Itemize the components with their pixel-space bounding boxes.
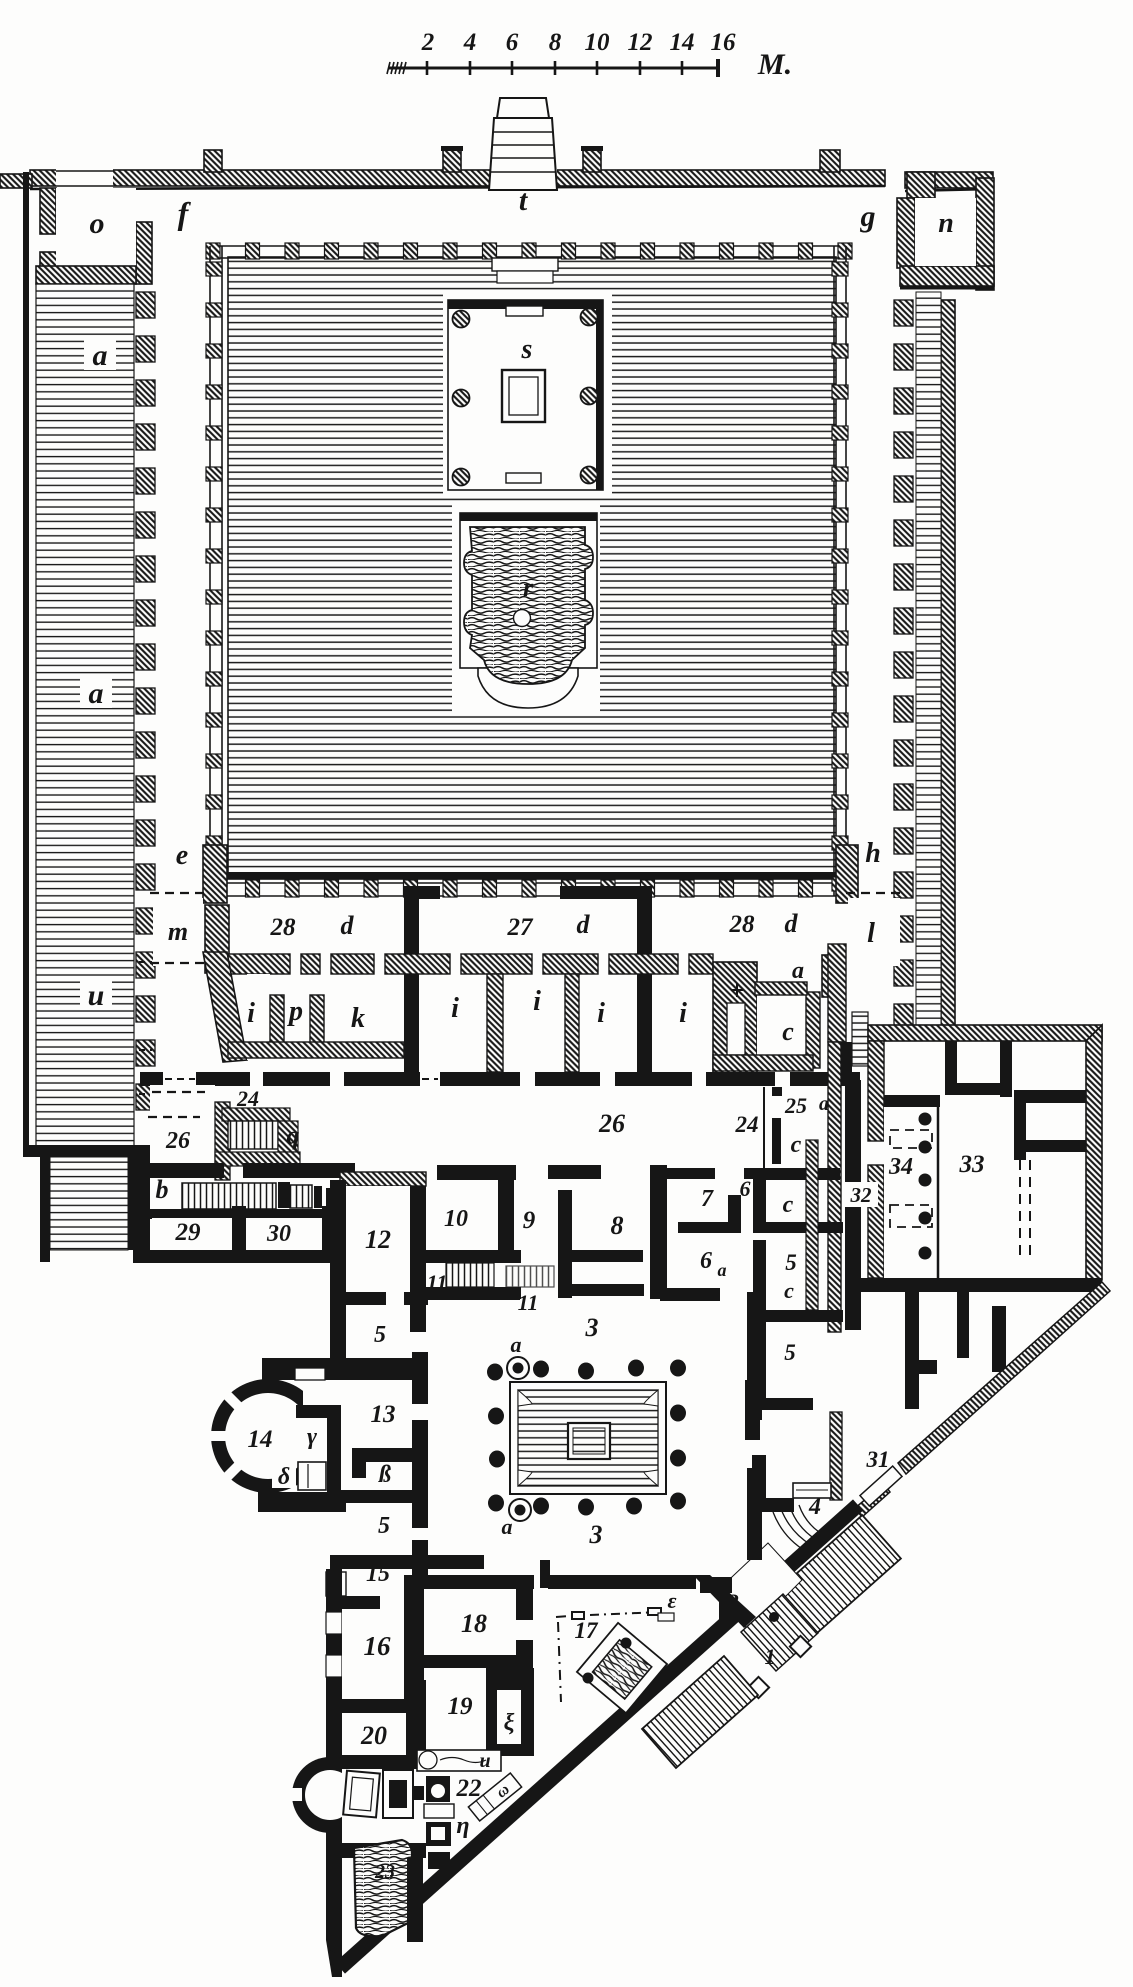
svg-text:u: u bbox=[479, 1750, 490, 1772]
svg-text:k: k bbox=[351, 1003, 365, 1034]
svg-text:a: a bbox=[792, 958, 804, 984]
svg-text:c: c bbox=[791, 1132, 802, 1158]
svg-text:24: 24 bbox=[236, 1086, 259, 1111]
svg-text:o: o bbox=[90, 207, 105, 240]
svg-text:c: c bbox=[784, 1278, 794, 1303]
svg-text:f: f bbox=[178, 195, 192, 231]
svg-text:n: n bbox=[938, 208, 954, 239]
svg-text:33: 33 bbox=[959, 1151, 985, 1178]
svg-text:h: h bbox=[865, 838, 881, 869]
svg-text:δ: δ bbox=[278, 1464, 290, 1490]
svg-text:10: 10 bbox=[585, 29, 611, 56]
svg-text:d: d bbox=[785, 909, 799, 938]
svg-text:g: g bbox=[860, 200, 876, 233]
svg-text:a: a bbox=[718, 1260, 727, 1280]
svg-text:s: s bbox=[521, 334, 533, 365]
svg-text:3: 3 bbox=[589, 1520, 603, 1549]
svg-text:19: 19 bbox=[448, 1693, 474, 1720]
svg-text:q: q bbox=[287, 1121, 300, 1150]
svg-text:22: 22 bbox=[456, 1775, 482, 1802]
svg-text:4: 4 bbox=[463, 29, 477, 56]
svg-text:6: 6 bbox=[740, 1176, 751, 1201]
svg-text:28: 28 bbox=[270, 914, 297, 941]
svg-text:34: 34 bbox=[888, 1154, 913, 1180]
svg-text:10: 10 bbox=[444, 1206, 468, 1232]
svg-text:16: 16 bbox=[711, 29, 737, 56]
svg-text:16: 16 bbox=[364, 1631, 392, 1661]
svg-text:a: a bbox=[93, 339, 108, 372]
svg-text:31: 31 bbox=[866, 1447, 890, 1472]
svg-text:5: 5 bbox=[374, 1322, 386, 1348]
svg-text:ß: ß bbox=[378, 1462, 391, 1488]
svg-text:6: 6 bbox=[700, 1248, 712, 1274]
svg-text:25: 25 bbox=[784, 1093, 807, 1118]
svg-text:6: 6 bbox=[506, 29, 519, 56]
svg-text:c: c bbox=[783, 1192, 794, 1218]
svg-text:ε: ε bbox=[667, 1588, 676, 1613]
svg-text:5: 5 bbox=[378, 1513, 390, 1539]
svg-text:27: 27 bbox=[507, 914, 535, 941]
svg-text:9: 9 bbox=[523, 1207, 536, 1234]
svg-text:5: 5 bbox=[785, 1250, 797, 1275]
svg-text:a: a bbox=[819, 1093, 829, 1115]
svg-text:e: e bbox=[176, 840, 188, 871]
svg-text:12: 12 bbox=[365, 1225, 391, 1254]
svg-text:8: 8 bbox=[611, 1211, 624, 1240]
svg-text:m: m bbox=[168, 917, 188, 946]
svg-text:3: 3 bbox=[585, 1313, 599, 1342]
svg-text:18: 18 bbox=[461, 1609, 487, 1638]
svg-text:32: 32 bbox=[850, 1183, 873, 1207]
svg-text:d: d bbox=[341, 911, 355, 940]
svg-text:η: η bbox=[456, 1813, 469, 1839]
svg-text:1: 1 bbox=[765, 1644, 776, 1669]
svg-text:15: 15 bbox=[366, 1561, 390, 1587]
svg-text:i: i bbox=[533, 986, 541, 1017]
svg-text:i: i bbox=[679, 998, 687, 1029]
svg-text:14: 14 bbox=[670, 29, 695, 56]
svg-text:5: 5 bbox=[784, 1340, 796, 1365]
svg-text:12: 12 bbox=[628, 29, 653, 56]
svg-text:γ: γ bbox=[307, 1424, 317, 1450]
svg-text:29: 29 bbox=[175, 1219, 202, 1246]
svg-text:M.: M. bbox=[757, 48, 792, 81]
svg-text:u: u bbox=[88, 979, 105, 1012]
svg-text:i: i bbox=[597, 998, 605, 1029]
svg-text:ξ: ξ bbox=[504, 1710, 515, 1736]
svg-text:26: 26 bbox=[165, 1128, 190, 1154]
svg-text:13: 13 bbox=[371, 1401, 396, 1428]
svg-text:2: 2 bbox=[421, 29, 435, 56]
svg-text:8: 8 bbox=[549, 29, 562, 56]
svg-text:4: 4 bbox=[808, 1494, 821, 1520]
svg-text:d: d bbox=[577, 910, 591, 939]
svg-text:26: 26 bbox=[598, 1109, 625, 1138]
svg-text:a: a bbox=[511, 1332, 522, 1357]
svg-text:17: 17 bbox=[575, 1618, 600, 1643]
svg-text:l: l bbox=[867, 918, 875, 949]
svg-text:11: 11 bbox=[518, 1290, 539, 1315]
svg-text:23: 23 bbox=[374, 1861, 395, 1883]
svg-text:14: 14 bbox=[248, 1426, 273, 1453]
svg-text:b: b bbox=[156, 1175, 169, 1204]
svg-text:r: r bbox=[523, 573, 534, 602]
svg-text:28: 28 bbox=[729, 911, 756, 938]
svg-text:30: 30 bbox=[266, 1221, 291, 1247]
svg-text:20: 20 bbox=[360, 1721, 387, 1750]
svg-text:i: i bbox=[451, 993, 459, 1024]
svg-text:p: p bbox=[287, 996, 303, 1027]
svg-text:c: c bbox=[782, 1017, 794, 1046]
svg-text:24: 24 bbox=[735, 1112, 759, 1137]
svg-text:7: 7 bbox=[701, 1186, 714, 1212]
svg-text:i: i bbox=[247, 998, 255, 1029]
svg-text:a: a bbox=[89, 677, 104, 710]
